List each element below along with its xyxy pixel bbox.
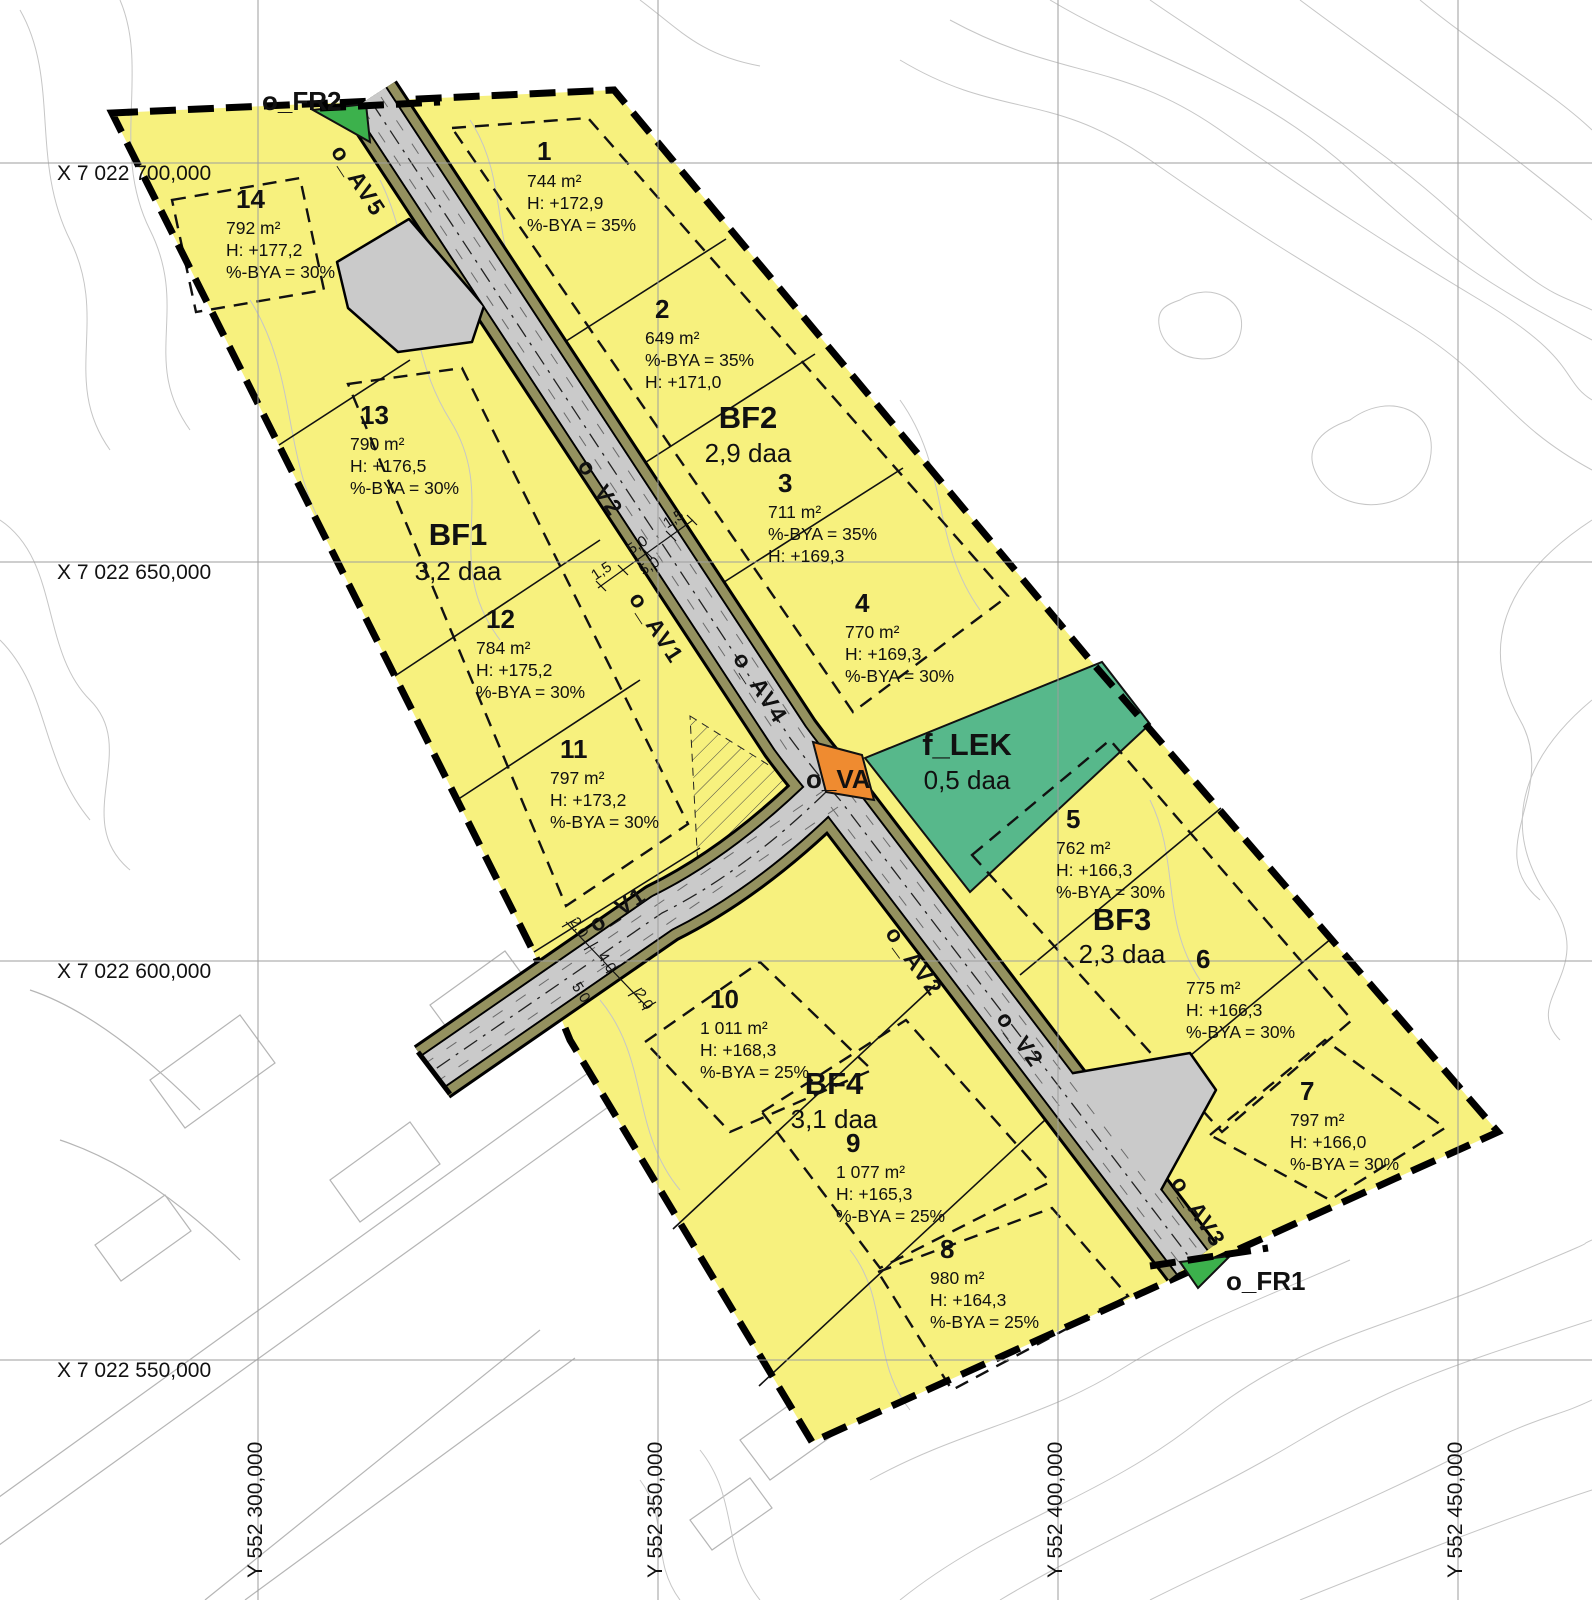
svg-text:%-BYA = 35%: %-BYA = 35% xyxy=(645,350,754,370)
svg-text:790 m²: 790 m² xyxy=(350,434,405,454)
svg-text:H: +168,3: H: +168,3 xyxy=(700,1040,776,1060)
svg-text:H: +172,9: H: +172,9 xyxy=(527,193,603,213)
road-label-va: o_VA xyxy=(806,764,871,794)
y-grid-label: Y 552 400,000 xyxy=(1044,1442,1067,1578)
svg-text:%-BYA = 30%: %-BYA = 30% xyxy=(845,666,954,686)
svg-text:H: +169,3: H: +169,3 xyxy=(768,546,844,566)
zone-bf2-id: BF2 xyxy=(719,400,778,435)
y-grid-label: Y 552 350,000 xyxy=(644,1442,667,1578)
svg-text:H: +171,0: H: +171,0 xyxy=(645,372,722,392)
svg-text:711 m²: 711 m² xyxy=(768,502,821,522)
svg-text:H: +164,3: H: +164,3 xyxy=(930,1290,1006,1310)
zone-bf4-size: 3,1 daa xyxy=(791,1104,878,1134)
svg-text:%-BYA = 25%: %-BYA = 25% xyxy=(930,1312,1039,1332)
svg-text:775 m²: 775 m² xyxy=(1186,978,1241,998)
svg-text:744 m²: 744 m² xyxy=(527,171,582,191)
svg-text:H: +176,5: H: +176,5 xyxy=(350,456,426,476)
svg-text:13: 13 xyxy=(360,400,389,430)
svg-text:%-BYA = 30%: %-BYA = 30% xyxy=(1290,1154,1399,1174)
svg-text:980 m²: 980 m² xyxy=(930,1268,985,1288)
zone-bf3-size: 2,3 daa xyxy=(1079,939,1166,969)
svg-text:%-BYA = 35%: %-BYA = 35% xyxy=(768,524,877,544)
zone-flek-size: 0,5 daa xyxy=(924,765,1011,795)
svg-text:%-BYA = 30%: %-BYA = 30% xyxy=(350,478,459,498)
svg-text:649 m²: 649 m² xyxy=(645,328,700,348)
svg-text:H: +165,3: H: +165,3 xyxy=(836,1184,912,1204)
svg-text:10: 10 xyxy=(710,984,739,1014)
svg-text:%-BYA = 30%: %-BYA = 30% xyxy=(476,682,585,702)
zone-bf1-id: BF1 xyxy=(429,517,488,552)
zone-bf3-id: BF3 xyxy=(1093,902,1152,937)
svg-text:1 011 m²: 1 011 m² xyxy=(700,1018,768,1038)
zoning-plan-map: X 7 022 700,000 X 7 022 650,000 X 7 022 … xyxy=(0,0,1592,1600)
zone-flek-id: f_LEK xyxy=(922,727,1012,762)
svg-text:11: 11 xyxy=(560,734,588,764)
svg-text:2: 2 xyxy=(655,294,669,324)
svg-text:797 m²: 797 m² xyxy=(1290,1110,1345,1130)
svg-text:7: 7 xyxy=(1300,1076,1314,1106)
svg-text:797 m²: 797 m² xyxy=(550,768,605,788)
x-grid-label: X 7 022 650,000 xyxy=(57,561,211,584)
svg-text:%-BYA = 30%: %-BYA = 30% xyxy=(1056,882,1165,902)
svg-text:8: 8 xyxy=(940,1234,954,1264)
map-canvas: X 7 022 700,000 X 7 022 650,000 X 7 022 … xyxy=(0,0,1592,1600)
svg-text:%-BYA = 35%: %-BYA = 35% xyxy=(527,215,636,235)
svg-text:%-BYA = 30%: %-BYA = 30% xyxy=(1186,1022,1295,1042)
svg-text:H: +166,0: H: +166,0 xyxy=(1290,1132,1367,1152)
y-grid-label: Y 552 300,000 xyxy=(244,1442,267,1578)
svg-text:H: +175,2: H: +175,2 xyxy=(476,660,552,680)
svg-text:H: +173,2: H: +173,2 xyxy=(550,790,626,810)
svg-text:3: 3 xyxy=(778,468,792,498)
y-grid-label: Y 552 450,000 xyxy=(1444,1442,1467,1578)
svg-text:770 m²: 770 m² xyxy=(845,622,900,642)
road-label-fr2: o_FR2 xyxy=(262,86,341,116)
svg-text:14: 14 xyxy=(236,184,265,214)
svg-text:%-BYA = 25%: %-BYA = 25% xyxy=(836,1206,945,1226)
svg-text:12: 12 xyxy=(486,604,515,634)
zone-bf2-size: 2,9 daa xyxy=(705,438,792,468)
svg-text:784 m²: 784 m² xyxy=(476,638,531,658)
svg-text:%-BYA = 30%: %-BYA = 30% xyxy=(226,262,335,282)
x-grid-label: X 7 022 600,000 xyxy=(57,960,211,983)
road-label-fr1: o_FR1 xyxy=(1226,1266,1305,1296)
svg-text:H: +166,3: H: +166,3 xyxy=(1056,860,1132,880)
svg-text:H: +177,2: H: +177,2 xyxy=(226,240,302,260)
x-grid-label: X 7 022 550,000 xyxy=(57,1359,211,1382)
svg-text:792 m²: 792 m² xyxy=(226,218,281,238)
svg-text:6: 6 xyxy=(1196,944,1210,974)
zone-bf4-id: BF4 xyxy=(805,1066,864,1101)
svg-text:H: +166,3: H: +166,3 xyxy=(1186,1000,1262,1020)
svg-text:9: 9 xyxy=(846,1128,860,1158)
svg-text:5: 5 xyxy=(1066,804,1080,834)
zone-bf1-size: 3,2 daa xyxy=(415,556,502,586)
svg-text:%-BYA = 30%: %-BYA = 30% xyxy=(550,812,659,832)
svg-text:%-BYA = 25%: %-BYA = 25% xyxy=(700,1062,809,1082)
svg-text:H: +169,3: H: +169,3 xyxy=(845,644,921,664)
svg-text:4: 4 xyxy=(855,588,870,618)
svg-text:1 077 m²: 1 077 m² xyxy=(836,1162,905,1182)
x-grid-label: X 7 022 700,000 xyxy=(57,162,211,185)
svg-text:1: 1 xyxy=(537,136,551,166)
svg-text:762 m²: 762 m² xyxy=(1056,838,1111,858)
